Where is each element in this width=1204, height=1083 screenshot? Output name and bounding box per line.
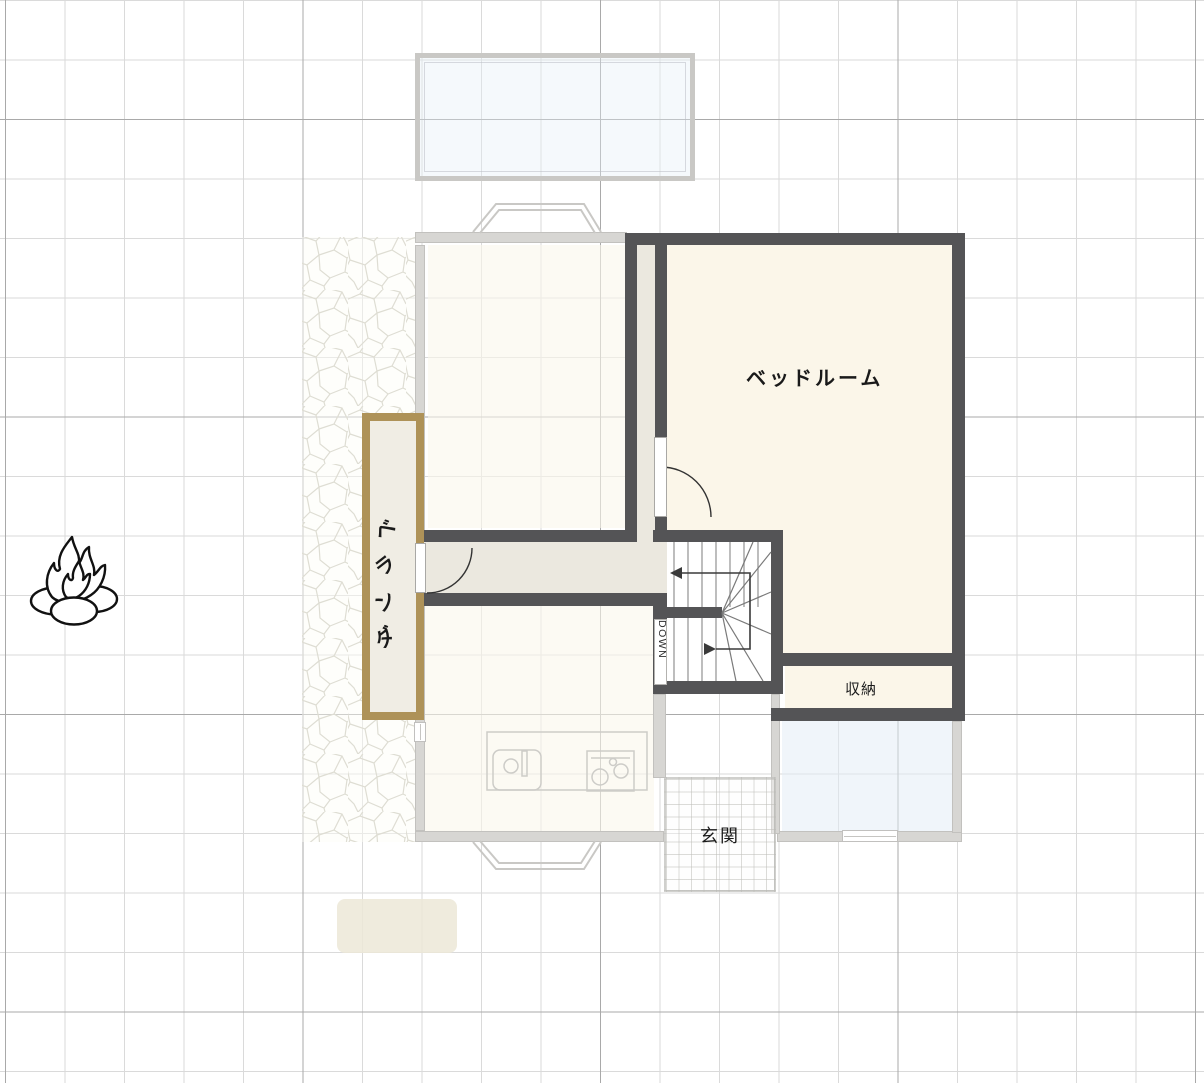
stair-and-door-lines: [0, 0, 1204, 1083]
floor-plan-canvas[interactable]: 玄関: [0, 0, 1204, 1083]
storage-label: 収納: [845, 678, 877, 699]
stair-direction-arrow: [670, 567, 750, 655]
stairs-down-label: DOWN: [655, 620, 668, 684]
bonfire-icon[interactable]: [28, 533, 120, 633]
door-swing-arcs: [427, 467, 711, 593]
veranda-door[interactable]: [415, 543, 426, 593]
bedroom-door[interactable]: [654, 437, 667, 517]
bedroom-label: ベッドルーム: [746, 362, 883, 391]
